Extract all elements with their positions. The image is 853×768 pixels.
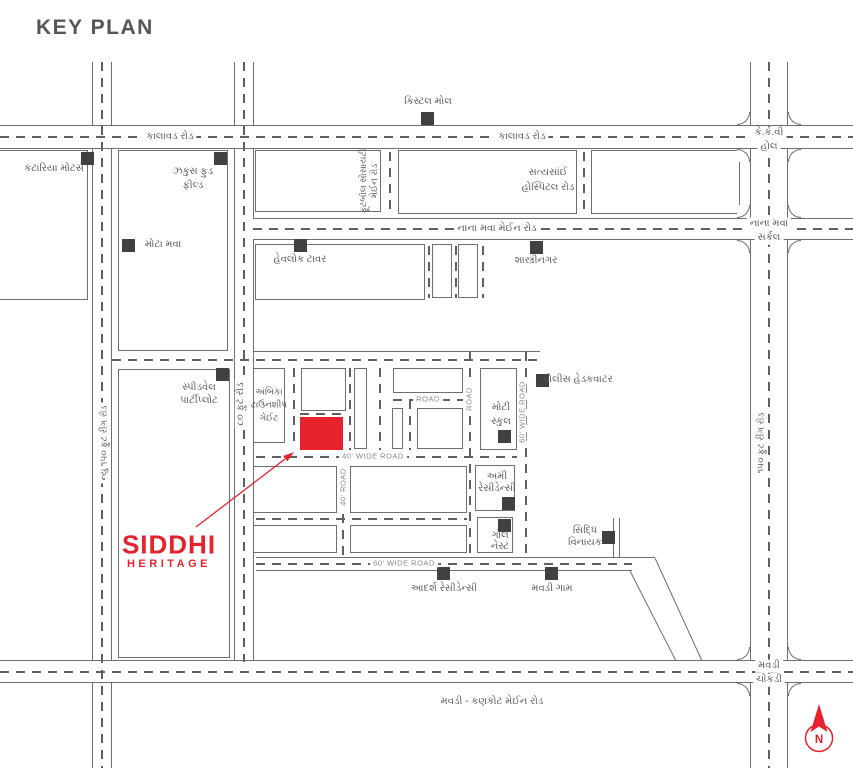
road-60wide-top-edge — [256, 557, 655, 558]
label-mavdi-kankot-road: મવડી - કણકોટ મેઈન રોડ — [441, 696, 544, 709]
block-c3-narrow — [354, 368, 367, 449]
curb — [788, 683, 801, 696]
label-satyasai-1: સત્યસાંઈ — [529, 167, 568, 180]
label-40wide-road: 40' WIDE ROAD — [339, 451, 407, 460]
curb — [788, 205, 801, 218]
diagonal-road-edge — [655, 558, 702, 661]
brand-logo-heritage: HERITAGE — [127, 558, 211, 570]
label-ami-1: અમી — [487, 471, 507, 484]
label-80ft-road: ૮૦ ફુટ રોડ — [235, 379, 248, 428]
label-zeus-2: ફીલ્ડ — [183, 180, 204, 193]
dash-lane-satyasai — [583, 152, 585, 214]
label-nana-mava-main-road: નાના મવા મેઈન રોડ — [454, 223, 539, 236]
key-plan-map: KEY PLAN — [0, 0, 853, 768]
marker-crystal-mall — [421, 112, 434, 125]
curb — [737, 205, 750, 218]
label-ambika-1: અંબિકા — [255, 386, 282, 397]
label-mavdi-chokdi-2: ચોકડી — [753, 674, 785, 687]
label-ami-2: રેસીડેન્સી — [478, 483, 516, 496]
label-kataria-motors: કટારિયા મોટર્સ — [24, 163, 84, 176]
marker-siddhi-vinayak — [602, 531, 615, 544]
block-row1-b — [350, 466, 467, 513]
label-crystal-mall: કિસ્ટલ મોલ — [404, 96, 452, 109]
block-c4-top — [393, 368, 463, 393]
label-mavdi-gam: મવડી ગામ — [531, 583, 572, 596]
label-kalavad-road-east: કાલાવડ રોડ — [495, 131, 548, 144]
label-60wide-road: 60' WIDE ROAD — [370, 558, 438, 567]
label-road-horizontal: ROAD — [413, 394, 443, 403]
dash-lane-shastri — [482, 246, 484, 298]
label-moti-school-2: સ્કુલ — [491, 416, 511, 429]
block-c4-thin — [392, 408, 403, 449]
label-siddhi-vinayak-1: સિદ્ધિ — [573, 525, 597, 538]
curb — [737, 647, 750, 660]
marker-ami-residency — [502, 497, 515, 510]
dash-lane-small — [455, 246, 457, 298]
dash-mavdi — [0, 671, 853, 673]
marker-mota-mava — [122, 239, 135, 252]
block-east — [591, 150, 740, 214]
marker-speedwell — [216, 368, 229, 381]
dash-60wide — [256, 563, 632, 565]
marker-moti-school — [498, 430, 511, 443]
label-nana-mava-circle-1: નાના મવા — [747, 218, 791, 231]
label-new-150ft-ring-road: ન્યુ ૧૫૦ ફુટ રીંગ રોડ — [98, 403, 109, 484]
label-football-society-road: ફૂટબૉલ સોસાયટી મેઈન રોડ — [358, 149, 381, 214]
curb — [737, 149, 750, 162]
label-road-vertical: ROAD — [464, 384, 473, 414]
cluster-top-edge — [253, 351, 540, 352]
dash-row-gap — [256, 518, 467, 520]
label-moti-school-1: મોટી — [492, 402, 510, 415]
dash-c2-gap — [300, 413, 346, 415]
label-havelock-tower: હેવલોક ટાવર — [274, 254, 327, 267]
dash-approach-road — [112, 359, 540, 361]
label-mavdi-chokdi-1: મવડી — [755, 660, 783, 673]
label-mota-mava: મોટા મવા — [145, 239, 181, 252]
brand-logo-siddhi: SIDDHI — [122, 530, 216, 561]
dash-lane-c4 — [379, 368, 381, 450]
label-satyasai-2: હોસ્પિટલ રોડ — [522, 182, 575, 195]
curb — [737, 240, 750, 253]
label-speedwell-2: પાર્ટીપ્લોટ — [180, 395, 218, 408]
curb — [737, 112, 750, 125]
label-zeus-1: ઝકુસ ફુડ — [173, 166, 213, 179]
label-40-road: 40' ROAD — [338, 465, 347, 509]
block-speedwell — [118, 369, 230, 658]
label-150ft-ring-road: ૧૫૦ ફુટ રીંગ રોડ — [755, 410, 766, 477]
marker-adarsh-residency — [437, 567, 450, 580]
marker-mavdi-gam — [545, 567, 558, 580]
diagonal-road-edge — [630, 571, 676, 661]
dash-lane-ambika — [293, 368, 295, 448]
curb — [788, 240, 801, 253]
label-police-hq: પોલીસ હેડકવાટર — [543, 374, 613, 387]
dash-lane-c4b — [409, 400, 411, 450]
curb — [788, 112, 801, 125]
curb — [788, 647, 801, 660]
block-havelock — [255, 244, 425, 300]
dash-road-v — [469, 352, 471, 556]
block-small-2 — [458, 244, 478, 298]
marker-havelock-tower — [294, 239, 307, 252]
page-title: KEY PLAN — [36, 16, 154, 40]
marker-zeus-food-field — [214, 152, 227, 165]
label-kkv-hall-1: કે.કે.વી — [752, 127, 787, 140]
compass-north-label: N — [815, 734, 823, 746]
curb — [788, 149, 801, 162]
label-kkv-hall-2: હોલ — [757, 141, 780, 154]
label-nana-mava-circle-2: સર્કલ — [755, 232, 784, 245]
label-speedwell-1: સ્પીડવેલ — [182, 382, 216, 395]
marker-shastrinagar — [530, 241, 543, 254]
north-arrow-icon — [811, 704, 828, 732]
block-row2-b — [350, 525, 467, 553]
block-c4-mid — [417, 408, 463, 449]
block-small-1 — [432, 244, 452, 298]
label-shastrinagar: શાસ્ત્રીનગર — [515, 255, 558, 268]
label-ambika-2: ટાઉનશીપ — [251, 399, 287, 410]
dash-80ft — [243, 62, 245, 662]
label-gol-2: નેસ્ટ — [491, 541, 509, 554]
block-row1-a — [253, 466, 337, 513]
curb — [737, 683, 750, 696]
block-c2-top — [301, 368, 346, 411]
north-compass: N — [806, 704, 833, 751]
compass-circle — [806, 726, 833, 751]
label-siddhi-vinayak-2: વિનાયક — [568, 537, 602, 550]
dash-kalavad — [0, 136, 853, 138]
label-60wide-road-vertical: 60' WIDE ROAD — [517, 378, 526, 446]
label-adarsh-residency: આદર્શ રેસીડેન્સી — [411, 583, 477, 596]
dash-lane-havelock — [428, 246, 430, 298]
label-kalavad-road-west: કાલાવડ રોડ — [143, 131, 196, 144]
dash-lane-football — [389, 152, 391, 212]
label-ambika-3: ગેઈટ — [260, 412, 279, 423]
site-plot-highlight — [300, 417, 343, 450]
dash-lane-c3 — [349, 368, 351, 450]
block-row2-a — [253, 525, 337, 553]
